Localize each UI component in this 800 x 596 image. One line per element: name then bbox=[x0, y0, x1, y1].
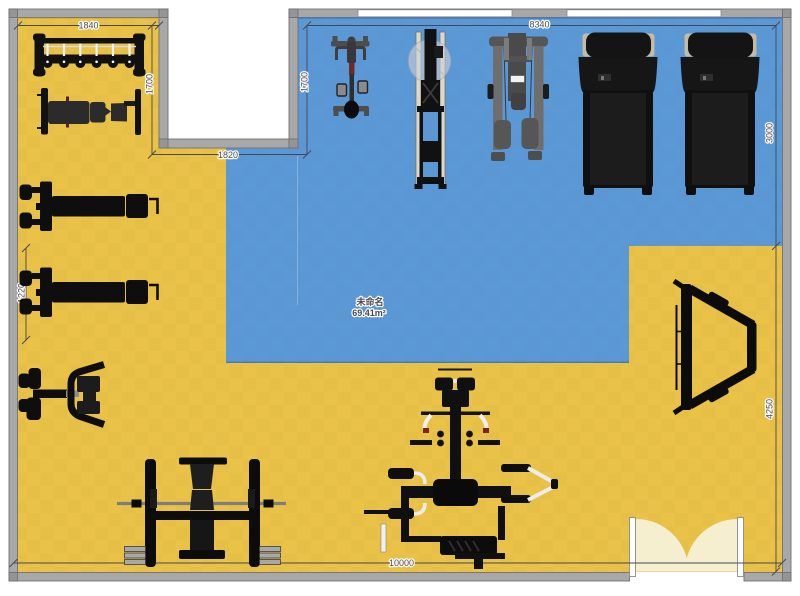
svg-text:1840: 1840 bbox=[78, 21, 98, 31]
svg-text:8340: 8340 bbox=[529, 20, 549, 30]
svg-text:未命名: 未命名 bbox=[355, 296, 383, 307]
svg-text:1700: 1700 bbox=[300, 72, 310, 92]
svg-text:10000: 10000 bbox=[389, 558, 414, 568]
svg-text:69.41m²: 69.41m² bbox=[352, 308, 386, 318]
svg-text:4250: 4250 bbox=[765, 399, 775, 419]
svg-text:3000: 3000 bbox=[765, 123, 775, 143]
svg-text:1820: 1820 bbox=[218, 150, 238, 160]
svg-text:1700: 1700 bbox=[145, 74, 155, 94]
